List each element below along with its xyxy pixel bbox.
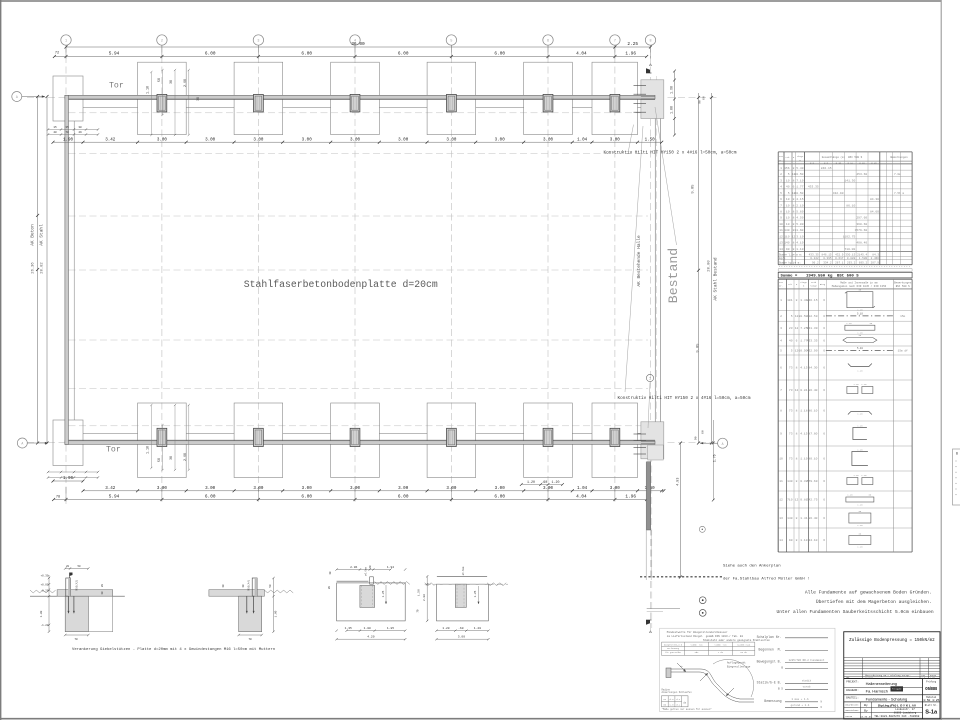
svg-text:30: 30 — [222, 584, 225, 588]
svg-text:BAUTEIL:: BAUTEIL: — [846, 696, 858, 699]
svg-text:Übertiefen mit dem Magerbeton: Übertiefen mit dem Magerbeton ausgleiche… — [816, 598, 932, 605]
svg-text:1.04: 1.04 — [577, 487, 588, 491]
svg-text:8: 8 — [796, 539, 798, 542]
svg-text:8: 8 — [780, 211, 782, 214]
svg-text:ø: ø — [793, 156, 795, 159]
svg-text:140: 140 — [787, 480, 793, 483]
svg-text:M16(A2): M16(A2) — [75, 579, 79, 590]
svg-text:1.04: 1.04 — [577, 138, 588, 142]
svg-text:BSt 500 S: BSt 500 S — [837, 275, 859, 279]
svg-text:A: A — [16, 95, 18, 99]
svg-text:20.00: 20.00 — [708, 260, 712, 272]
svg-text:5.94: 5.94 — [109, 52, 120, 57]
svg-text:1.90: 1.90 — [63, 477, 74, 481]
svg-text:1.20: 1.20 — [527, 480, 535, 484]
svg-text:8: 8 — [793, 204, 795, 207]
svg-text:4.93: 4.93 — [677, 478, 681, 486]
svg-text:80.10: 80.10 — [808, 458, 817, 461]
svg-text:1.10: 1.10 — [796, 248, 803, 251]
svg-text:.60: .60 — [541, 480, 547, 484]
svg-text:5.00: 5.00 — [796, 223, 803, 226]
svg-text:3.00: 3.00 — [495, 487, 506, 491]
svg-text:Summe kg je ø:: Summe kg je ø: — [779, 261, 801, 265]
svg-text:4.04: 4.04 — [576, 495, 587, 500]
svg-text:35: 35 — [65, 126, 69, 129]
svg-text:B 5: B 5 — [778, 687, 783, 690]
svg-text:8: 8 — [793, 211, 795, 214]
svg-text:8: 8 — [796, 299, 798, 302]
svg-text:7 ds: 7 ds — [718, 651, 724, 654]
svg-text:kg/m: kg/m — [779, 256, 786, 260]
svg-text:3.00: 3.00 — [398, 138, 409, 142]
svg-text:6.00: 6.00 — [205, 495, 216, 500]
svg-text:3.00: 3.00 — [205, 487, 216, 491]
svg-text:60.50: 60.50 — [794, 192, 803, 195]
svg-text:4.04: 4.04 — [576, 52, 587, 57]
svg-text:90: 90 — [695, 436, 698, 440]
svg-text:3.42: 3.42 — [105, 487, 116, 491]
svg-text:Bemerkungen: Bemerkungen — [894, 280, 912, 284]
svg-text:4.15: 4.15 — [800, 433, 807, 436]
svg-text:B5: B5 — [663, 704, 666, 707]
svg-text:20: 20 — [328, 586, 331, 590]
svg-text:5: 5 — [780, 350, 782, 353]
svg-text:1 mas + 1.b: 1 mas + 1.b — [791, 697, 809, 701]
svg-text:BSt 500 S: BSt 500 S — [896, 285, 910, 288]
svg-text:15: 15 — [53, 126, 57, 129]
svg-text:6: 6 — [823, 410, 825, 413]
svg-text:7: 7 — [614, 40, 616, 44]
svg-text:101: 101 — [787, 299, 793, 302]
svg-text:Länge: Länge — [797, 155, 804, 158]
svg-text:Hallenerweiterung: Hallenerweiterung — [866, 681, 897, 686]
svg-text:293.2: 293.2 — [847, 262, 856, 265]
svg-text:20.02: 20.02 — [41, 262, 45, 274]
svg-text:6: 6 — [823, 367, 825, 370]
svg-text:36.00: 36.00 — [351, 41, 365, 47]
svg-text:für Querstäbe: für Querstäbe — [665, 651, 681, 654]
svg-text:3.00: 3.00 — [253, 138, 264, 142]
svg-text:Fundamente - Schalung: Fundamente - Schalung — [866, 697, 908, 702]
svg-text:1.10: 1.10 — [846, 322, 852, 325]
svg-text:+0.00: +0.00 — [41, 584, 49, 587]
svg-text:1.00: 1.00 — [275, 610, 278, 617]
svg-text:8: 8 — [793, 179, 795, 182]
svg-text:6: 6 — [823, 339, 825, 342]
svg-text:90: 90 — [786, 248, 790, 251]
svg-text:86.40: 86.40 — [808, 389, 817, 392]
svg-text:1.10: 1.10 — [800, 539, 807, 542]
svg-text:84.60: 84.60 — [870, 211, 879, 214]
svg-text:5: 5 — [788, 192, 790, 195]
svg-text:gerund + 1.b: gerund + 1.b — [791, 703, 810, 707]
svg-text:1.10: 1.10 — [146, 86, 150, 94]
svg-text:10: 10 — [786, 198, 790, 201]
svg-text:1.10: 1.10 — [857, 309, 863, 312]
svg-text:40: 40 — [53, 131, 57, 134]
svg-text:ø: ø — [796, 283, 798, 286]
svg-text:Summe l.je ø m:: Summe l.je ø m: — [779, 253, 802, 257]
svg-text:70: 70 — [65, 131, 69, 134]
svg-text:710.00: 710.00 — [844, 248, 855, 251]
svg-text:4ds: 4ds — [695, 651, 700, 654]
svg-text:710: 710 — [787, 499, 793, 502]
svg-text:1.10: 1.10 — [857, 424, 863, 427]
svg-text:AK Stahl: AK Stahl — [39, 224, 45, 246]
svg-text:1.10: 1.10 — [857, 370, 863, 373]
svg-text:50: 50 — [157, 78, 161, 82]
svg-text:6.00: 6.00 — [398, 495, 409, 500]
svg-text:86.10: 86.10 — [846, 204, 855, 207]
svg-text:73: 73 — [789, 367, 793, 370]
svg-text:1.10: 1.10 — [857, 546, 863, 549]
svg-text:-0.20: -0.20 — [41, 589, 49, 592]
svg-text:4.10: 4.10 — [796, 242, 803, 245]
svg-text:N: N — [821, 706, 823, 709]
svg-text:NR.: NR. — [846, 676, 850, 679]
svg-text:13: 13 — [779, 242, 783, 245]
svg-text:4.15: 4.15 — [796, 198, 803, 201]
svg-text:6: 6 — [796, 339, 798, 342]
svg-text:846.15: 846.15 — [822, 254, 832, 257]
svg-text:Nr.: Nr. — [779, 285, 783, 288]
svg-text:8: 8 — [793, 198, 795, 201]
svg-text:1.41: 1.41 — [800, 517, 807, 520]
svg-text:1.35: 1.35 — [345, 627, 352, 630]
svg-text:70: 70 — [248, 638, 252, 641]
svg-text:8: 8 — [796, 367, 798, 370]
svg-text:2.00: 2.00 — [423, 594, 426, 601]
svg-text:84.30: 84.30 — [808, 367, 817, 370]
svg-text:1.96: 1.96 — [625, 495, 636, 500]
svg-text:2.60: 2.60 — [183, 79, 187, 87]
svg-text:AK Beton: AK Beton — [30, 224, 36, 246]
svg-text:50: 50 — [269, 584, 272, 588]
svg-text:14: 14 — [779, 248, 783, 251]
svg-text:12: 12 — [795, 389, 799, 392]
svg-text:2145.4: 2145.4 — [857, 254, 867, 257]
svg-text:30: 30 — [78, 126, 82, 129]
svg-text:7.10: 7.10 — [796, 179, 803, 182]
svg-text:2.466: 2.466 — [871, 257, 880, 260]
svg-text:9: 9 — [780, 217, 782, 220]
svg-text:ø6.6mm: ø6.6mm — [365, 567, 368, 576]
svg-text:AK Bestehende Halle: AK Bestehende Halle — [636, 235, 642, 287]
svg-text:7.0m: 7.0m — [894, 173, 901, 176]
svg-text:432.90: 432.90 — [833, 192, 844, 195]
svg-text:10: 10 — [786, 204, 790, 207]
svg-text:4: 4 — [780, 186, 782, 189]
svg-text:10: 10 — [786, 217, 790, 220]
svg-text:846.15: 846.15 — [821, 167, 832, 170]
svg-text:9: 9 — [780, 433, 782, 436]
svg-text:ø 8: ø 8 — [824, 161, 829, 164]
svg-text:Fe: Fe — [663, 698, 666, 701]
svg-text:15m: 15m — [900, 315, 905, 318]
svg-text:73: 73 — [789, 389, 793, 392]
svg-text:30: 30 — [101, 591, 104, 595]
svg-text:S-1a: S-1a — [925, 710, 938, 716]
svg-text:Maße und Innenmaße in mm: Maße und Innenmaße in mm — [840, 280, 878, 284]
svg-text:1.50: 1.50 — [418, 589, 421, 596]
svg-text:50: 50 — [157, 458, 161, 462]
svg-text:3.00: 3.00 — [458, 636, 465, 639]
svg-text:2.25: 2.25 — [627, 42, 638, 47]
svg-text:Biegerollen-ø d: Biegerollen-ø d — [664, 643, 683, 646]
svg-text:20: 20 — [66, 565, 70, 568]
svg-text:70: 70 — [74, 638, 78, 641]
svg-text:statik: statik — [802, 679, 812, 683]
svg-text:12: 12 — [795, 327, 799, 330]
svg-text:86899 Landsberg: 86899 Landsberg — [894, 711, 917, 714]
svg-text:Auflagepunkt: Auflagepunkt — [727, 661, 746, 665]
svg-text:8: 8 — [796, 433, 798, 436]
svg-text:+0.30: +0.30 — [41, 575, 49, 578]
svg-text:1.77: 1.77 — [796, 186, 803, 189]
svg-text:5: 5 — [788, 173, 790, 176]
svg-text:7: 7 — [780, 389, 782, 392]
svg-text:13: 13 — [779, 517, 783, 520]
svg-text:433.35: 433.35 — [809, 254, 819, 257]
svg-text:30: 30 — [329, 571, 332, 575]
svg-text:402.50: 402.50 — [807, 315, 818, 318]
svg-text:140: 140 — [784, 229, 790, 232]
svg-text:23: 23 — [789, 327, 793, 330]
svg-text:453.60: 453.60 — [856, 173, 867, 176]
svg-text:87.60: 87.60 — [808, 433, 817, 436]
svg-text:30: 30 — [242, 584, 245, 588]
svg-text:1102.75: 1102.75 — [843, 235, 856, 238]
svg-text:60: 60 — [703, 96, 706, 100]
svg-text:3.00: 3.00 — [157, 487, 168, 491]
svg-text:8: 8 — [793, 248, 795, 251]
svg-text:6.00: 6.00 — [494, 52, 505, 57]
svg-text:8: 8 — [793, 242, 795, 245]
svg-text:ø6.6mm: ø6.6mm — [462, 566, 465, 575]
svg-text:1579.60: 1579.60 — [855, 229, 868, 232]
svg-text:B: B — [956, 452, 959, 456]
svg-text:Blatt Nr.: Blatt Nr. — [925, 704, 938, 707]
svg-text:der Fa.Stahlbau Alfred Müller: der Fa.Stahlbau Alfred Müller GmbH ! — [723, 577, 809, 582]
svg-text:5: 5 — [780, 192, 782, 195]
svg-text:3.00: 3.00 — [398, 487, 409, 491]
svg-text:10: 10 — [786, 179, 790, 182]
svg-text:1.20: 1.20 — [474, 627, 481, 630]
svg-text:60: 60 — [859, 510, 862, 513]
svg-text:0.222: 0.222 — [810, 257, 819, 260]
svg-text:Statik: Statik — [865, 676, 874, 679]
svg-text:Verformung: Verformung — [667, 647, 680, 650]
svg-text:6: 6 — [823, 327, 825, 330]
svg-text:<20mm <16: <20mm <16 — [690, 643, 703, 646]
svg-text:1.08: 1.08 — [930, 676, 936, 679]
svg-text:9.85: 9.85 — [692, 184, 696, 194]
svg-text:6: 6 — [823, 539, 825, 542]
svg-text:60: 60 — [859, 532, 862, 535]
svg-text:579.60: 579.60 — [807, 480, 818, 483]
svg-text:1.90: 1.90 — [63, 138, 74, 142]
svg-text:6: 6 — [823, 458, 825, 461]
svg-text:d.M: d.M — [670, 698, 675, 701]
svg-text:Maßangaben nach DIN 1045 / DIN: Maßangaben nach DIN 1045 / DIN 1356 — [832, 284, 887, 288]
svg-text:A: A — [722, 442, 724, 446]
svg-text:3: 3 — [780, 327, 782, 330]
svg-text:73: 73 — [789, 433, 793, 436]
svg-text:ø 10: ø 10 — [836, 161, 842, 164]
svg-text:1: 1 — [65, 40, 67, 44]
svg-text:ø 16: ø 16 — [859, 161, 865, 164]
svg-text:Zulässige Bodenpressung = 150k: Zulässige Bodenpressung = 150kN/m2 — [849, 638, 935, 643]
svg-text:2: 2 — [780, 315, 782, 318]
svg-text:1: 1 — [649, 378, 651, 382]
svg-text:-1.20: -1.20 — [41, 624, 49, 627]
svg-text:0.81: 0.81 — [800, 389, 807, 392]
svg-text:1: 1 — [780, 299, 782, 302]
svg-text:>=20mm >=16: >=20mm >=16 — [737, 643, 751, 646]
svg-text:49: 49 — [78, 131, 82, 134]
svg-text:N: N — [821, 700, 823, 703]
svg-text:4: 4 — [780, 339, 782, 342]
svg-text:Alle Fundamente auf gewachsene: Alle Fundamente auf gewachsenem Boden Gr… — [805, 590, 932, 596]
svg-text:26.36: 26.36 — [32, 262, 36, 274]
svg-text:156: 156 — [784, 167, 790, 170]
svg-text:12: 12 — [792, 235, 796, 238]
svg-text:6: 6 — [823, 315, 825, 318]
svg-text:8: 8 — [780, 410, 782, 413]
svg-text:10: 10 — [779, 223, 783, 226]
svg-text:3.00: 3.00 — [446, 487, 457, 491]
svg-text:0.888: 0.888 — [847, 257, 856, 260]
svg-text:.60: .60 — [458, 627, 464, 630]
svg-text:Bearbeitet: Bearbeitet — [846, 704, 860, 707]
svg-text:Tor: Tor — [109, 82, 124, 91]
svg-text:Mindestwerte für Biegerollendu: Mindestwerte für Biegerollendurchmesser — [667, 630, 728, 634]
svg-text:2.06: 2.06 — [350, 566, 357, 569]
svg-text:12: 12 — [779, 499, 783, 502]
svg-text:6: 6 — [780, 198, 782, 201]
svg-text:1.94: 1.94 — [387, 566, 394, 569]
svg-text:432.9: 432.9 — [835, 254, 844, 257]
svg-text:1.20: 1.20 — [552, 480, 560, 484]
svg-text:3.00: 3.00 — [350, 487, 361, 491]
svg-text:8: 8 — [793, 217, 795, 220]
svg-text:Bieg: Bieg — [820, 283, 826, 286]
svg-text:141.30: 141.30 — [807, 327, 818, 330]
svg-text:Verankerung Giebelstützen - Pl: Verankerung Giebelstützen - Platte d=20m… — [72, 647, 275, 652]
svg-text:84.3: 84.3 — [872, 254, 879, 257]
svg-text:60: 60 — [870, 322, 873, 325]
svg-text:6: 6 — [823, 350, 825, 353]
svg-text:1.85: 1.85 — [387, 627, 394, 630]
svg-text:14: 14 — [779, 539, 783, 542]
svg-text:1.10: 1.10 — [857, 504, 863, 507]
svg-text:1.25: 1.25 — [382, 590, 385, 597]
svg-text:60: 60 — [869, 494, 872, 497]
svg-text:By: By — [864, 704, 868, 707]
svg-text:ds: ds — [680, 665, 683, 668]
svg-text:2.60: 2.60 — [183, 453, 187, 461]
svg-text:1.20: 1.20 — [442, 627, 449, 630]
svg-text:Biegerollenlage: Biegerollenlage — [727, 664, 751, 668]
svg-text:5: 5 — [791, 315, 793, 318]
svg-text:5: 5 — [450, 40, 452, 44]
svg-text:ø 6: ø 6 — [810, 161, 815, 164]
svg-text:1.00: 1.00 — [364, 627, 371, 630]
svg-text:ds: ds — [683, 702, 686, 705]
svg-text:8: 8 — [796, 458, 798, 461]
svg-text:1.00: 1.00 — [40, 610, 43, 617]
svg-text:Begonnen M.: Begonnen M. — [759, 648, 782, 652]
svg-text:6: 6 — [823, 433, 825, 436]
svg-text:12: 12 — [779, 235, 783, 238]
svg-text:1225/786 NR.2 Fundament: 1225/786 NR.2 Fundament — [789, 658, 825, 662]
svg-text:4.20: 4.20 — [367, 636, 374, 639]
svg-text:B: B — [781, 667, 783, 670]
svg-text:1.96: 1.96 — [625, 52, 636, 57]
svg-text:3.00: 3.00 — [302, 138, 313, 142]
svg-text:6: 6 — [823, 480, 825, 483]
svg-text:267.1: 267.1 — [835, 262, 844, 265]
svg-text:Bemerkungen: Bemerkungen — [890, 155, 908, 159]
svg-text:11: 11 — [779, 480, 783, 483]
svg-text:60: 60 — [701, 430, 704, 434]
svg-text:4.15: 4.15 — [800, 367, 807, 370]
svg-text:86.10: 86.10 — [808, 410, 817, 413]
svg-text:1949.550 kg: 1949.550 kg — [806, 274, 833, 279]
svg-text:10 ds: 10 ds — [740, 651, 747, 654]
svg-text:im Lieferzustand Ringel gemäß: im Lieferzustand Ringel gemäß DIN 1013-/… — [667, 634, 744, 638]
svg-text:ø 20: ø 20 — [871, 161, 877, 164]
svg-text:*Maße gelten nur aussen für au: *Maße gelten nur aussen für aussen* — [662, 708, 713, 711]
svg-text:Prüfung: Prüfung — [926, 681, 937, 684]
svg-text:Stk.: Stk. — [785, 156, 790, 159]
svg-text:3: 3 — [257, 40, 259, 44]
svg-text:330.15: 330.15 — [845, 254, 855, 257]
svg-text:20: 20 — [369, 565, 372, 569]
svg-text:5.10: 5.10 — [857, 347, 863, 350]
svg-text:73: 73 — [789, 410, 793, 413]
svg-text:6.00: 6.00 — [301, 52, 312, 57]
svg-text:141.30: 141.30 — [844, 179, 855, 182]
svg-text:0.395: 0.395 — [823, 257, 832, 260]
svg-text:3.42: 3.42 — [105, 138, 116, 142]
svg-text:360.60: 360.60 — [856, 223, 867, 226]
svg-text:3.00: 3.00 — [543, 487, 554, 491]
svg-text:12: 12 — [795, 499, 799, 502]
svg-text:6.00: 6.00 — [494, 495, 505, 500]
svg-text:6.00: 6.00 — [205, 52, 216, 57]
svg-text:110: 110 — [784, 235, 790, 238]
svg-text:90: 90 — [699, 100, 702, 104]
svg-text:408.40: 408.40 — [856, 242, 867, 245]
svg-text:78: 78 — [56, 496, 60, 500]
svg-text:PROJEKT:: PROJEKT: — [846, 680, 858, 683]
svg-text:6: 6 — [780, 367, 782, 370]
svg-text:Konstruktiv Hilti HIT HY150 2: Konstruktiv Hilti HIT HY150 2 x 4#16 l=5… — [604, 150, 737, 155]
svg-text:8: 8 — [649, 40, 651, 44]
svg-text:m: m — [799, 159, 801, 162]
svg-text:1:50 1:25: 1:50 1:25 — [923, 699, 939, 702]
svg-text:1.580: 1.580 — [859, 257, 868, 260]
svg-text:Gesamtlänge (m) BSt 500 S: Gesamtlänge (m) BSt 500 S — [822, 155, 863, 159]
svg-text:6: 6 — [823, 499, 825, 502]
svg-text:5.60: 5.60 — [796, 211, 803, 214]
svg-text:1.50: 1.50 — [645, 138, 656, 142]
svg-text:84.30: 84.30 — [870, 198, 879, 201]
svg-text:3.00: 3.00 — [205, 138, 216, 142]
svg-text:Konstruktiv Hilti HIT HY150 2: Konstruktiv Hilti HIT HY150 2 x 4#16 l=5… — [618, 396, 751, 401]
svg-text:Fa. Harmsch: Fa. Harmsch — [866, 689, 888, 694]
